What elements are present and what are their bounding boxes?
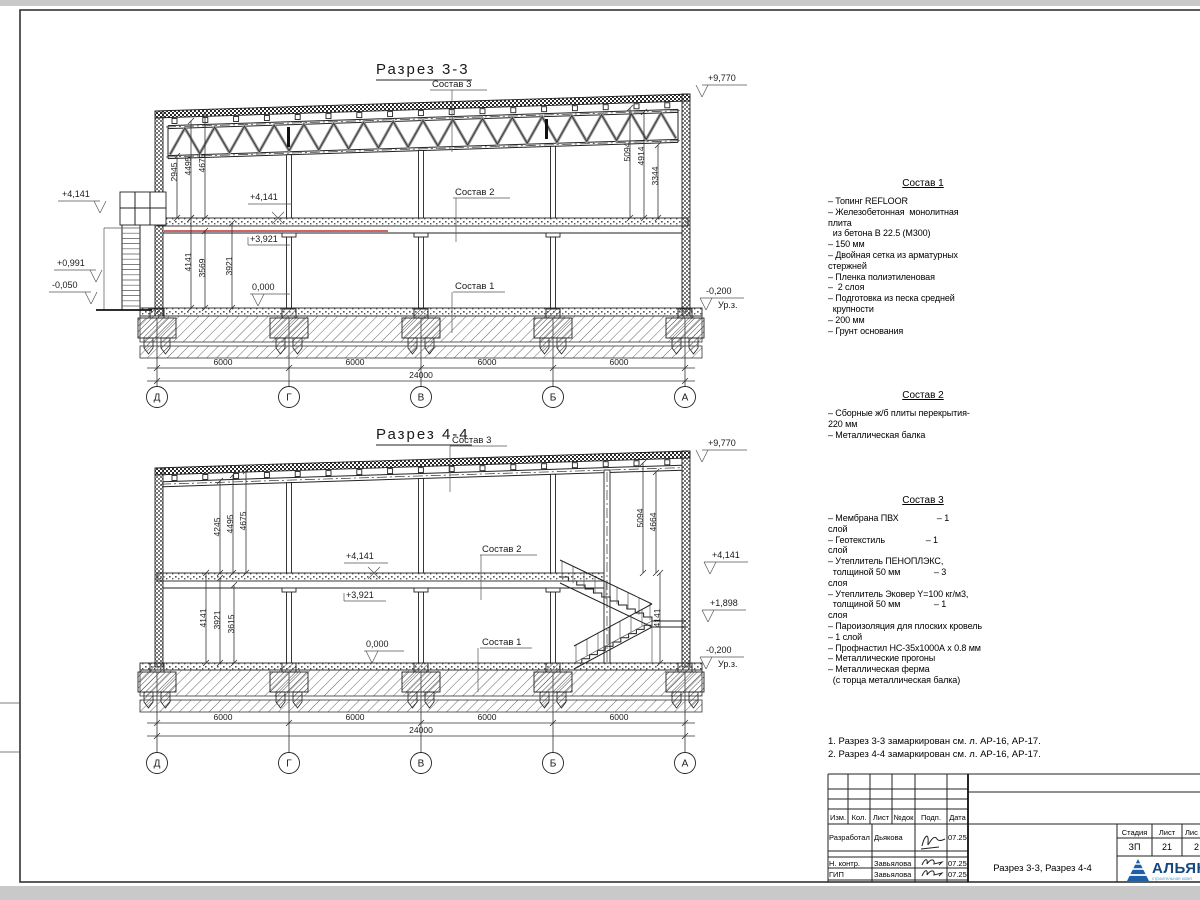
composition-note-3: Состав 3 – Мембрана ПВХ – 1слой– Геотекс… [828,495,1018,686]
floor-slab [157,218,688,226]
wall-left [155,468,163,667]
elevation-mark: +4,141 [58,189,106,213]
sostav3-label: Состав 3 [432,79,471,90]
tb-date: 07.25 [948,859,967,868]
dim: 4675 [238,511,248,530]
text-line: слоя [828,578,1018,589]
tb-name: Завьялова [874,870,911,879]
tb-col-podp: Подп. [915,813,947,822]
svg-text:+9,770: +9,770 [708,438,736,448]
svg-text:+4,141: +4,141 [250,192,278,202]
dim: 4664 [648,512,658,531]
tb-col-list: Лист [870,813,892,822]
svg-text:+0,991: +0,991 [57,258,85,268]
company-subtitle: строительная комп [1152,876,1192,881]
dim: 5094 [622,142,632,161]
tb-doc-title: Разрез 3-3, Разрез 4-4 [969,864,1116,874]
span-dim: 6000 [214,357,233,367]
text-line: – Геотекстиль – 1 [828,535,1018,546]
grid-bubble-label: А [682,393,689,404]
sostav1-label: Состав 1 [455,281,494,292]
span-dim: 6000 [478,712,497,722]
span-dim: 6000 [610,712,629,722]
dim: 4245 [212,517,222,536]
composition-body: – Сборные ж/б плиты перекрытия-220 мм– М… [828,408,1018,440]
text-line: – Утеплитель ПЕНОПЛЭКС, [828,556,1018,567]
text-line: – Металлическая балка [828,430,1018,441]
sostav3-label: Состав 3 [452,435,491,446]
elevation-mark: +4,141 [704,550,748,574]
text-line: – Профнастил НС-35х1000А х 0.8 мм [828,643,1018,654]
span-dim: 6000 [346,357,365,367]
grid-bubble-label: Б [550,759,557,770]
svg-text:Ур.з.: Ур.з. [718,300,737,310]
svg-text:-0,200: -0,200 [706,286,732,296]
span-dim: 6000 [610,357,629,367]
dim: 4141 [183,252,193,271]
truss-brace-mark [545,119,548,139]
dim: 3569 [197,258,207,277]
dim: 5094 [635,508,645,527]
dim: 4495 [183,156,193,175]
dim: 4141 [198,608,208,627]
elevation-mark: +0,991 [54,258,102,282]
section-title: Разрез 3-3 [376,61,470,78]
text-line: – Пароизоляция для плоских кровель [828,621,1018,632]
text-line: 220 мм [828,419,1018,430]
text-line: слоя [828,610,1018,621]
sostav1-label: Состав 1 [482,637,521,648]
dim: 3615 [226,614,236,633]
text-line: – 2 слоя [828,282,1018,293]
total-dim: 24000 [409,725,433,735]
grid-bubble-label: А [682,759,689,770]
elevation-mark-zero: 0,000 [364,639,404,663]
ground-hatch [140,700,702,712]
composition-note-1: Состав 1 – Топинг REFLOOR– Железобетонна… [828,178,1018,336]
drawing-canvas: Разрез 3-3 [0,0,1200,900]
text-line: плита [828,218,1018,229]
tb-date: 07.25 [948,870,967,879]
text-line: – Металлическая ферма [828,664,1018,675]
text-line: – 200 мм [828,315,1018,326]
svg-text:+3,921: +3,921 [346,590,374,600]
text-line: – 150 мм [828,239,1018,250]
tb-sheets: 2 [1194,842,1199,852]
elevation-mark-roof: +9,770 [696,438,747,462]
drawing-sheet: Разрез 3-3 [0,0,1200,900]
dim: 2945 [169,162,179,181]
text-line: (с торца металлическая балка) [828,675,1018,686]
grid-bubble-label: Д [154,759,161,770]
tb-sheet: 21 [1152,842,1182,852]
text-line: 1. Разрез 3-3 замаркирован см. л. АР-16,… [828,736,1041,749]
text-line: из бетона В 22.5 (М300) [828,228,1018,239]
svg-text:+1,898: +1,898 [710,598,738,608]
grid-bubble-label: Д [154,393,161,404]
tb-role: ГИП [829,870,844,879]
sostav2-label: Состав 2 [455,187,494,198]
wall-right [682,94,690,316]
columns [282,474,560,663]
tb-name: Дьякова [874,833,903,842]
text-line: слой [828,545,1018,556]
composition-note-2: Состав 2 – Сборные ж/б плиты перекрытия-… [828,390,1018,440]
dim: 4675 [197,153,207,172]
text-line: – Грунт основания [828,326,1018,337]
sostav2-label: Состав 2 [482,544,521,555]
tb-stage: ЗП [1117,842,1152,852]
dim: 3344 [650,166,660,185]
text-line: – Пленка полиэтиленовая [828,272,1018,283]
composition-body: – Топинг REFLOOR– Железобетонная монолит… [828,196,1018,336]
elevation-mark: +3,921 [344,590,386,601]
elevation-mark-ground: -0,200 Ур.з. [700,286,744,310]
columns [282,146,560,308]
text-line: – Утеплитель Эковер Y=100 кг/м3, [828,589,1018,600]
dim: 4141 [652,608,662,627]
svg-text:+3,921: +3,921 [250,234,278,244]
span-dim: 6000 [346,712,365,722]
grid-bubble-label: В [418,393,425,404]
company-logo-icon [1127,859,1149,881]
text-line: 2. Разрез 4-4 замаркирован см. л. АР-16,… [828,749,1041,762]
tb-stage-label: Стадия [1117,828,1152,837]
dim: 3921 [212,610,222,629]
floor-slab [157,573,605,581]
svg-text:-0,200: -0,200 [706,645,732,655]
tb-col-ndok: №док [892,813,915,822]
tb-name: Завьялова [874,859,911,868]
dim: 3921 [224,256,234,275]
composition-title: Состав 1 [828,178,1018,189]
text-line: – Металлические прогоны [828,653,1018,664]
tb-date: 07.25 [948,833,967,842]
signature-marks [921,836,945,876]
dim: 4914 [636,146,646,165]
tb-sheets-label: Лис [1185,828,1198,837]
span-dim: 6000 [478,357,497,367]
svg-text:Ур.з.: Ур.з. [718,659,737,669]
grid-bubble-label: В [418,759,425,770]
text-line: слой [828,524,1018,535]
tb-role: Н. контр. [829,859,860,868]
text-line: – 1 слой [828,632,1018,643]
wall-right [682,451,690,667]
composition-body: – Мембрана ПВХ – 1слой– Геотекстиль – 1с… [828,513,1018,686]
svg-text:+4,141: +4,141 [712,550,740,560]
text-line: – Сборные ж/б плиты перекрытия- [828,408,1018,419]
tb-sheet-label: Лист [1152,828,1182,837]
elevation-mark: -0,050 [49,280,97,304]
tb-col-data: Дата [947,813,968,822]
truss-brace-mark [287,127,290,147]
grid-bubble-label: Б [550,393,557,404]
svg-text:+4,141: +4,141 [346,551,374,561]
tb-col-kol: Кол. [848,813,870,822]
composition-title: Состав 3 [828,495,1018,506]
tb-role: Разработал [829,833,870,842]
svg-text:-0,050: -0,050 [52,280,78,290]
elevation-mark-roof: +9,770 [696,73,747,97]
company-name: АЛЬЯН [1152,860,1200,877]
elevation-mark: +1,898 [702,598,746,622]
text-line: – Двойная сетка из арматурных [828,250,1018,261]
elevation-mark-zero: 0,000 [250,282,290,306]
text-line: крупности [828,304,1018,315]
text-line: толщиной 50 мм – 1 [828,599,1018,610]
text-line: – Железобетонная монолитная [828,207,1018,218]
composition-title: Состав 2 [828,390,1018,401]
text-line: толщиной 50 мм – 3 [828,567,1018,578]
general-notes: 1. Разрез 3-3 замаркирован см. л. АР-16,… [828,736,1041,761]
section-4-4: Разрез 4-4 Состав 3 Состав 2 Сос [138,426,748,774]
svg-text:0,000: 0,000 [252,282,275,292]
svg-text:+4,141: +4,141 [62,189,90,199]
svg-text:0,000: 0,000 [366,639,389,649]
grid-bubble-label: Г [286,393,292,404]
section-3-3: Разрез 3-3 [49,61,747,408]
svg-text:+9,770: +9,770 [708,73,736,83]
text-line: – Топинг REFLOOR [828,196,1018,207]
dim: 4495 [225,514,235,533]
elevation-mark-ground: -0,200 Ур.з. [700,645,744,669]
total-dim: 24000 [409,370,433,380]
text-line: стержней [828,261,1018,272]
text-line: – Подготовка из песка средней [828,293,1018,304]
span-dim: 6000 [214,712,233,722]
tb-col-izm: Изм. [828,813,848,822]
grid-bubble-label: Г [286,759,292,770]
text-line: – Мембрана ПВХ – 1 [828,513,1018,524]
